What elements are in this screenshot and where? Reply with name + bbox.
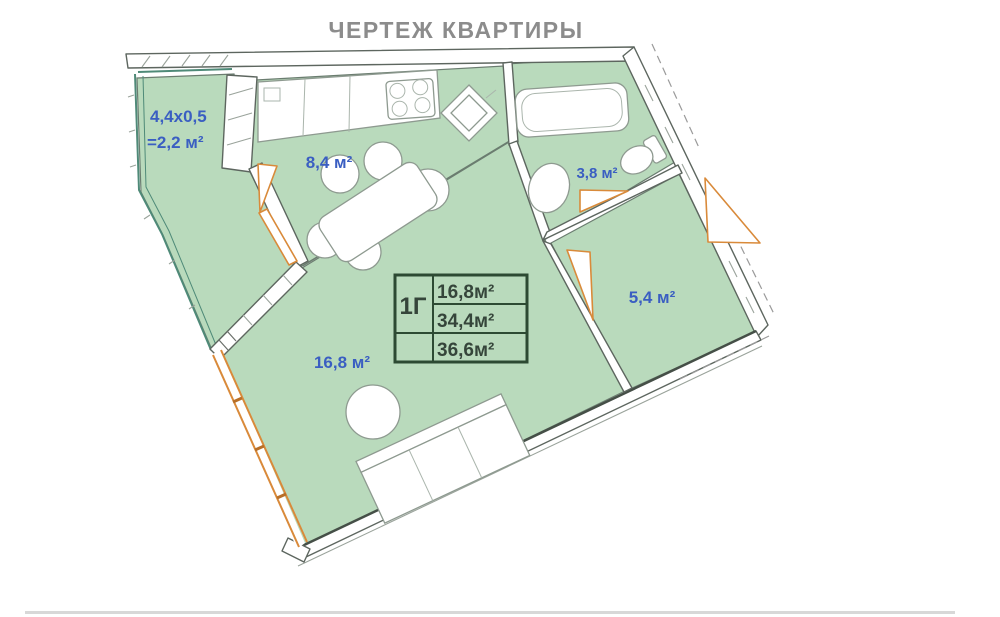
stove-icon <box>386 78 436 119</box>
entrance-door-swing <box>705 178 760 243</box>
bathroom-area-label: 3,8 м² <box>576 165 617 182</box>
round-table-icon <box>346 385 400 439</box>
living-area-label: 16,8 м² <box>314 353 370 372</box>
hallway-area-label: 5,4 м² <box>629 288 676 307</box>
area-table-row-3: 36,6м² <box>437 340 494 361</box>
apartment-blueprint: 4,4x0,5 =2,2 м² 8,4 м² 3,8 м² 5,4 м² 16,… <box>0 0 1000 617</box>
wall-balcony-kitchen <box>222 75 257 172</box>
balcony-dimensions-label: 4,4x0,5 <box>150 107 207 126</box>
kitchen-area-label: 8,4 м² <box>306 153 353 172</box>
page-bottom-line <box>25 611 955 614</box>
bathtub-icon <box>514 82 629 138</box>
area-table-row-1: 16,8м² <box>437 282 494 303</box>
unit-number: 1Г <box>400 293 427 320</box>
balcony-area-label: =2,2 м² <box>147 133 204 152</box>
page-title: ЧЕРТЕЖ КВАРТИРЫ <box>328 17 583 43</box>
area-table-row-2: 34,4м² <box>437 311 494 332</box>
